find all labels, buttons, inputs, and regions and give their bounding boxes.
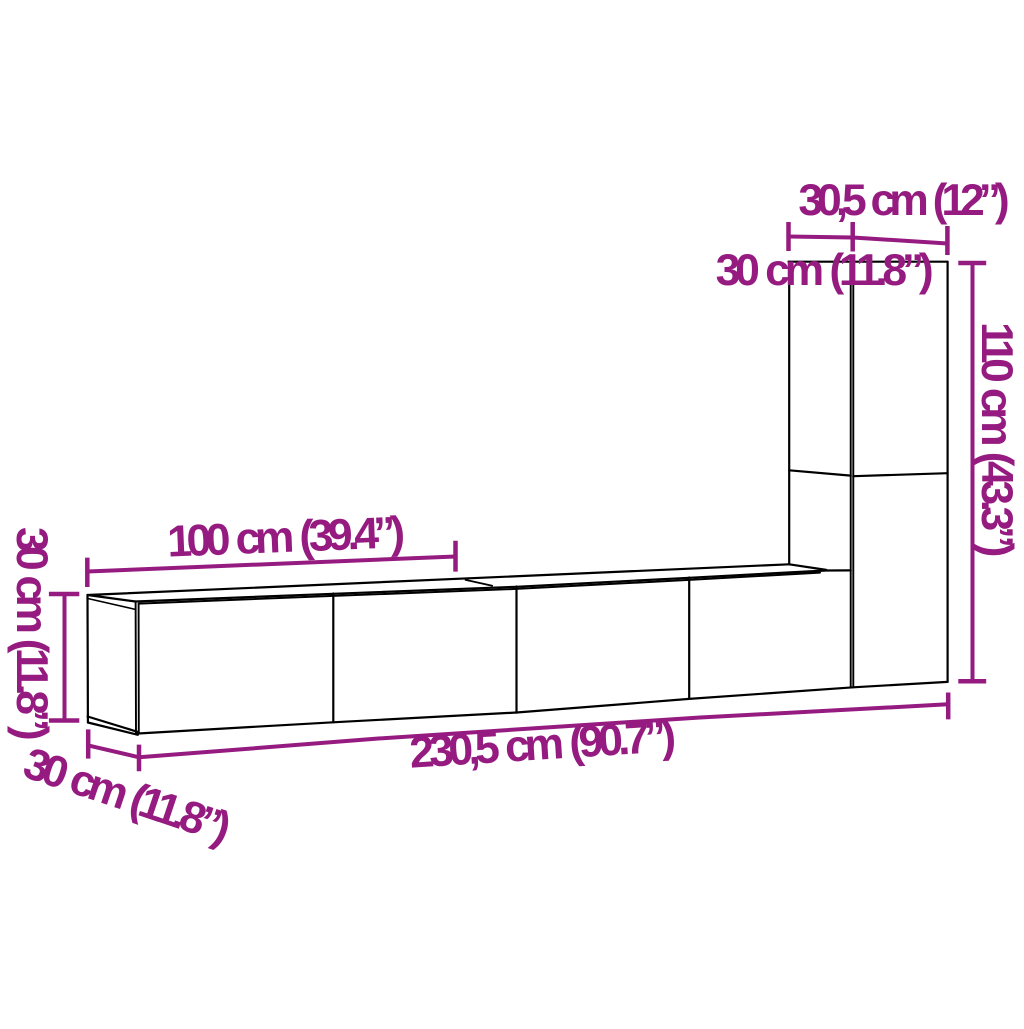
svg-text:30 cm (11.8”): 30 cm (11.8”) bbox=[7, 527, 56, 739]
svg-text:30,5 cm (12”): 30,5 cm (12”) bbox=[798, 176, 1008, 225]
svg-text:100 cm (39.4”): 100 cm (39.4”) bbox=[166, 508, 404, 566]
svg-text:30 cm (11.8”): 30 cm (11.8”) bbox=[716, 246, 932, 295]
svg-text:110 cm (43.3”): 110 cm (43.3”) bbox=[972, 322, 1021, 556]
